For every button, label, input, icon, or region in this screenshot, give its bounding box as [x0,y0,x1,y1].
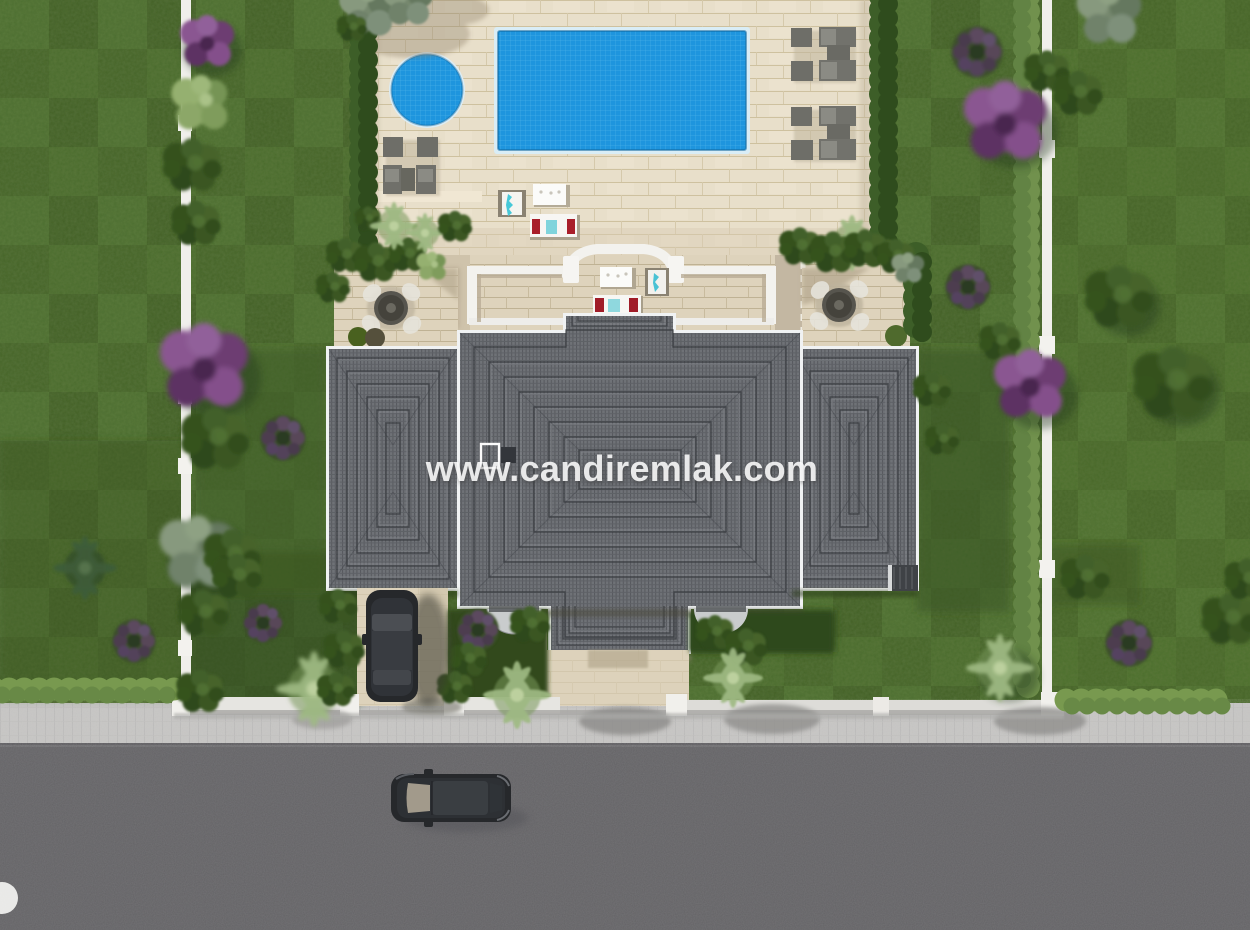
svg-text:www.candiremlak.com: www.candiremlak.com [425,448,819,489]
